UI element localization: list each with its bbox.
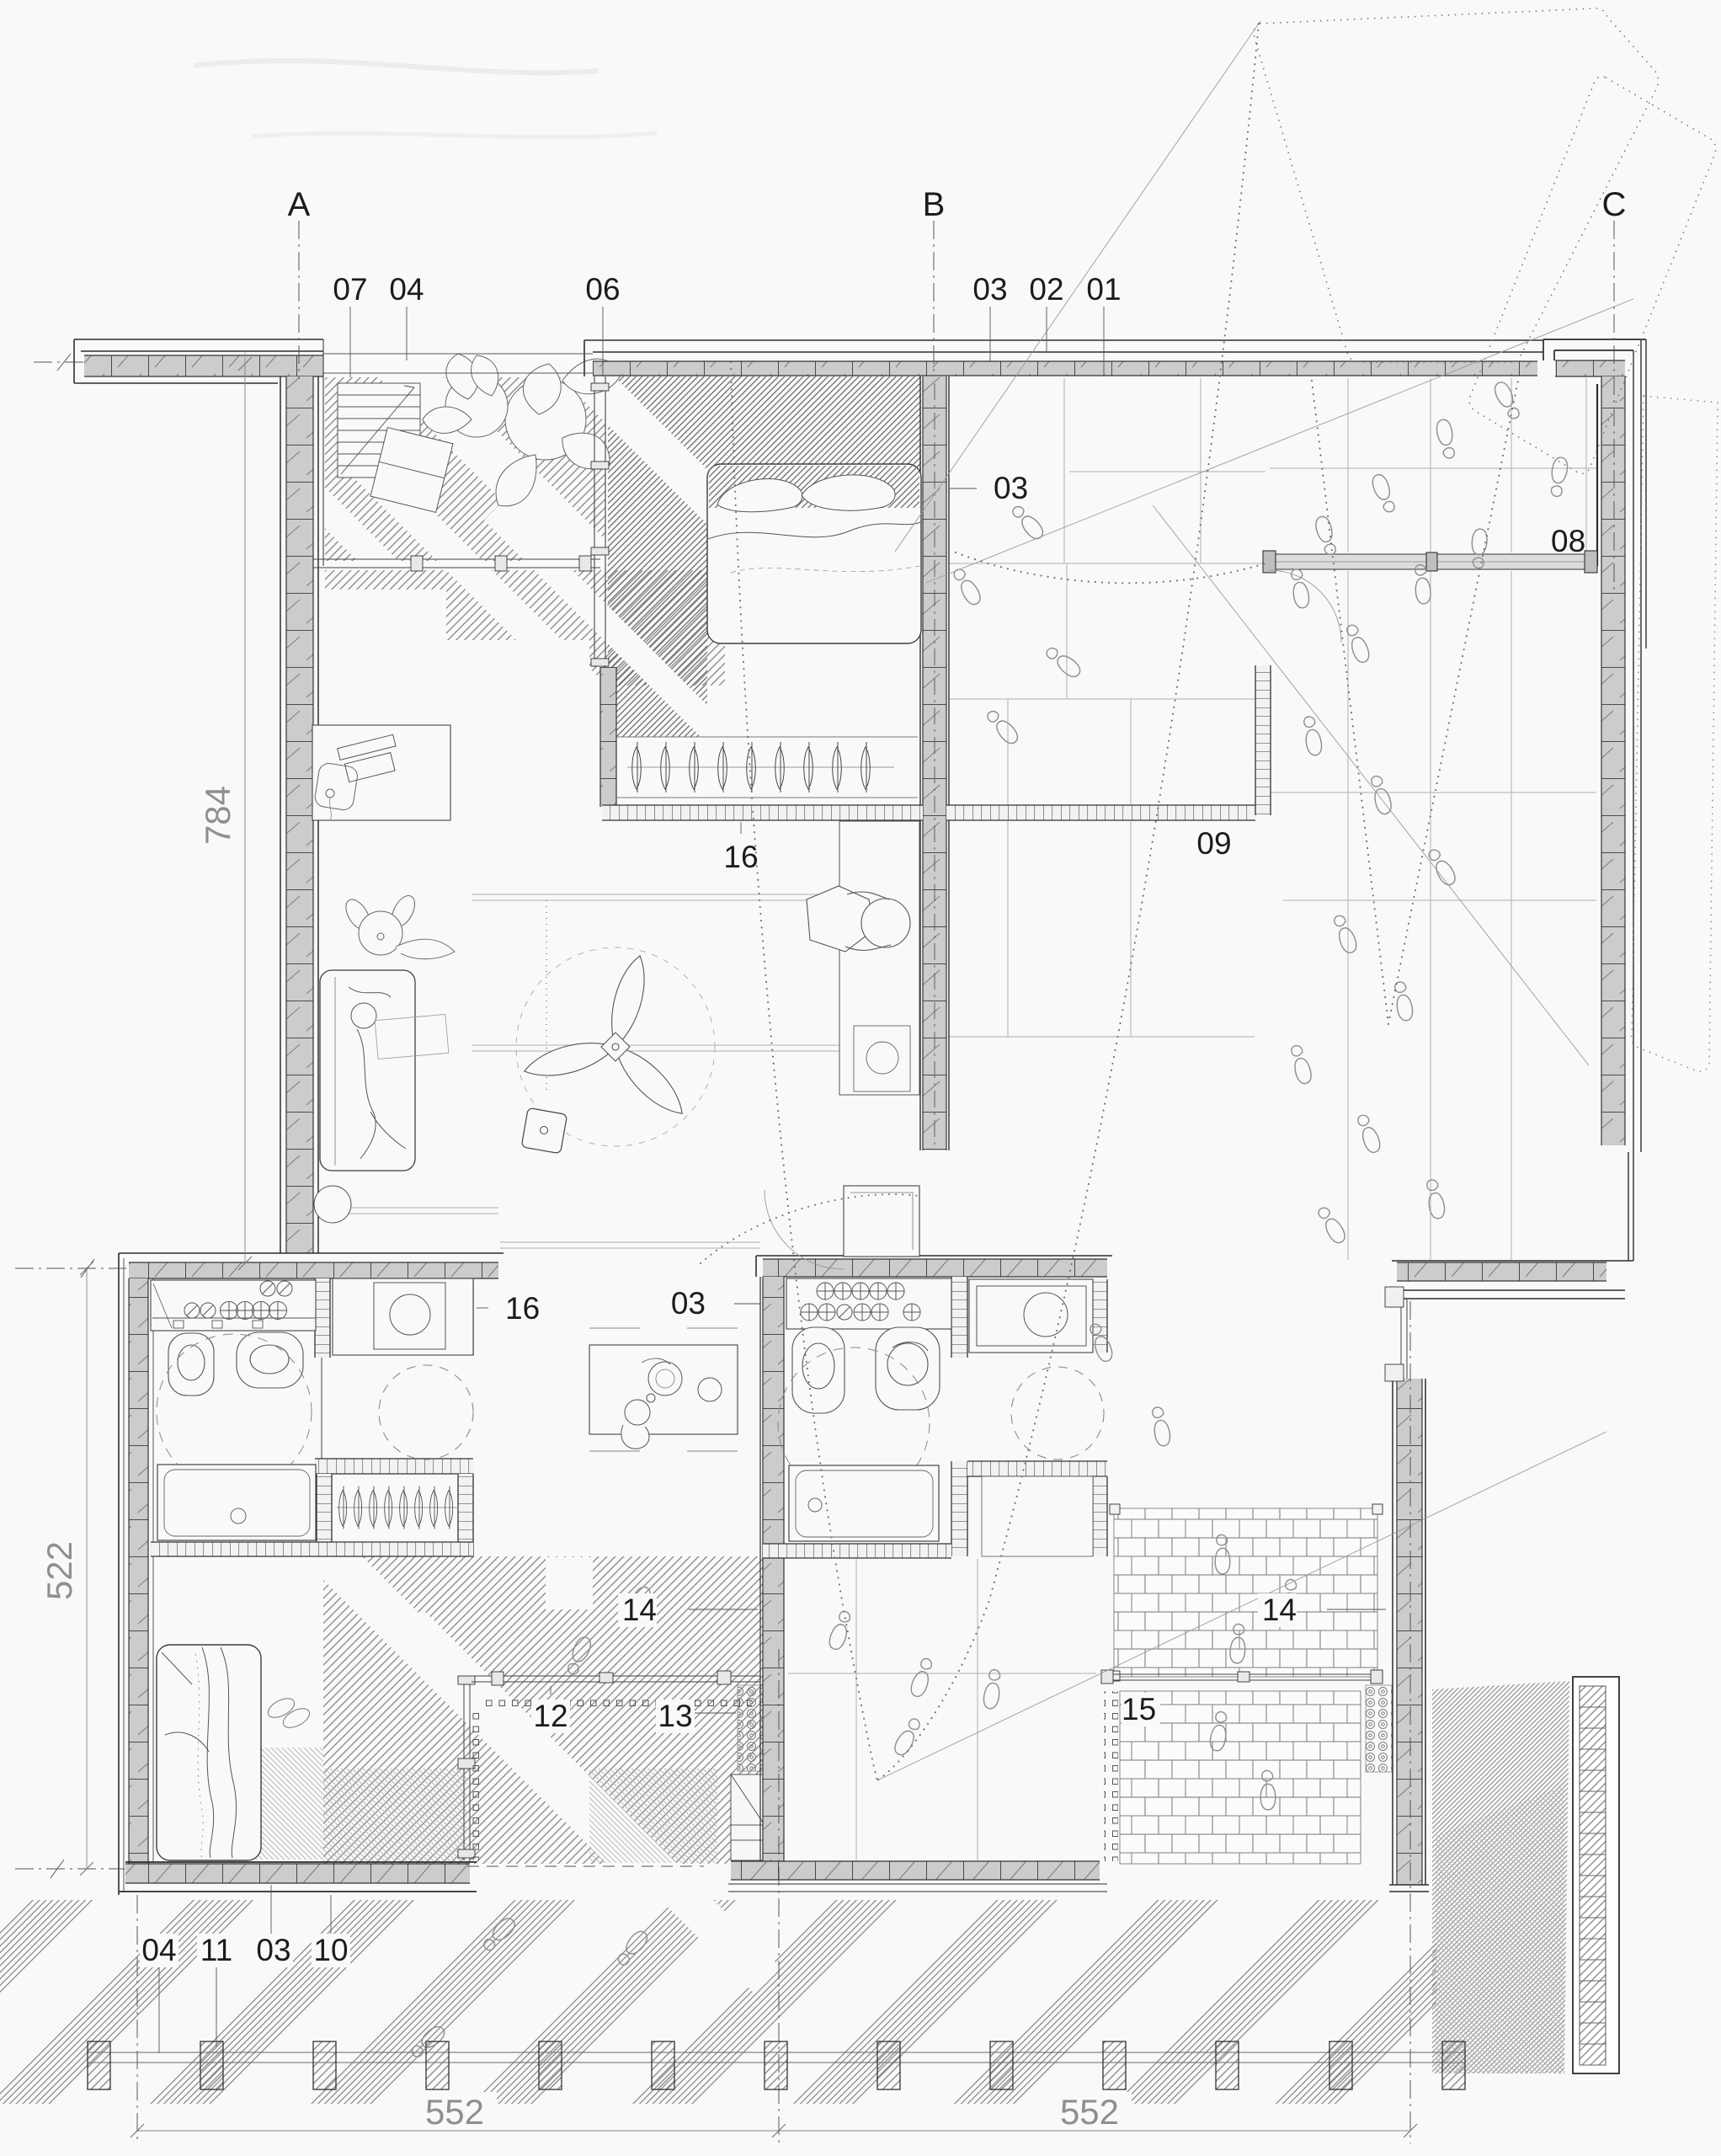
- svg-text:03: 03: [972, 272, 1007, 307]
- svg-text:03: 03: [671, 1286, 706, 1321]
- svg-text:13: 13: [658, 1699, 692, 1733]
- svg-text:14: 14: [1262, 1593, 1297, 1627]
- svg-text:552: 552: [1060, 2092, 1119, 2132]
- svg-text:B: B: [923, 186, 946, 223]
- svg-text:06: 06: [585, 272, 620, 307]
- svg-text:01: 01: [1086, 272, 1121, 307]
- svg-text:03: 03: [256, 1933, 290, 1967]
- svg-text:08: 08: [1551, 524, 1585, 558]
- svg-text:07: 07: [333, 272, 367, 307]
- svg-text:15: 15: [1122, 1692, 1156, 1726]
- svg-text:10: 10: [313, 1933, 348, 1967]
- svg-text:16: 16: [723, 840, 758, 874]
- svg-text:04: 04: [141, 1933, 176, 1967]
- svg-text:552: 552: [425, 2092, 484, 2132]
- svg-text:04: 04: [389, 272, 424, 307]
- svg-text:16: 16: [505, 1291, 540, 1326]
- svg-text:784: 784: [198, 786, 237, 845]
- svg-text:03: 03: [994, 471, 1028, 505]
- svg-text:02: 02: [1029, 272, 1063, 307]
- svg-text:14: 14: [622, 1593, 657, 1627]
- svg-text:11: 11: [200, 1933, 232, 1967]
- svg-text:C: C: [1602, 186, 1627, 223]
- svg-text:09: 09: [1196, 826, 1231, 861]
- svg-text:522: 522: [40, 1541, 79, 1600]
- svg-text:A: A: [288, 186, 311, 223]
- svg-text:12: 12: [533, 1699, 567, 1733]
